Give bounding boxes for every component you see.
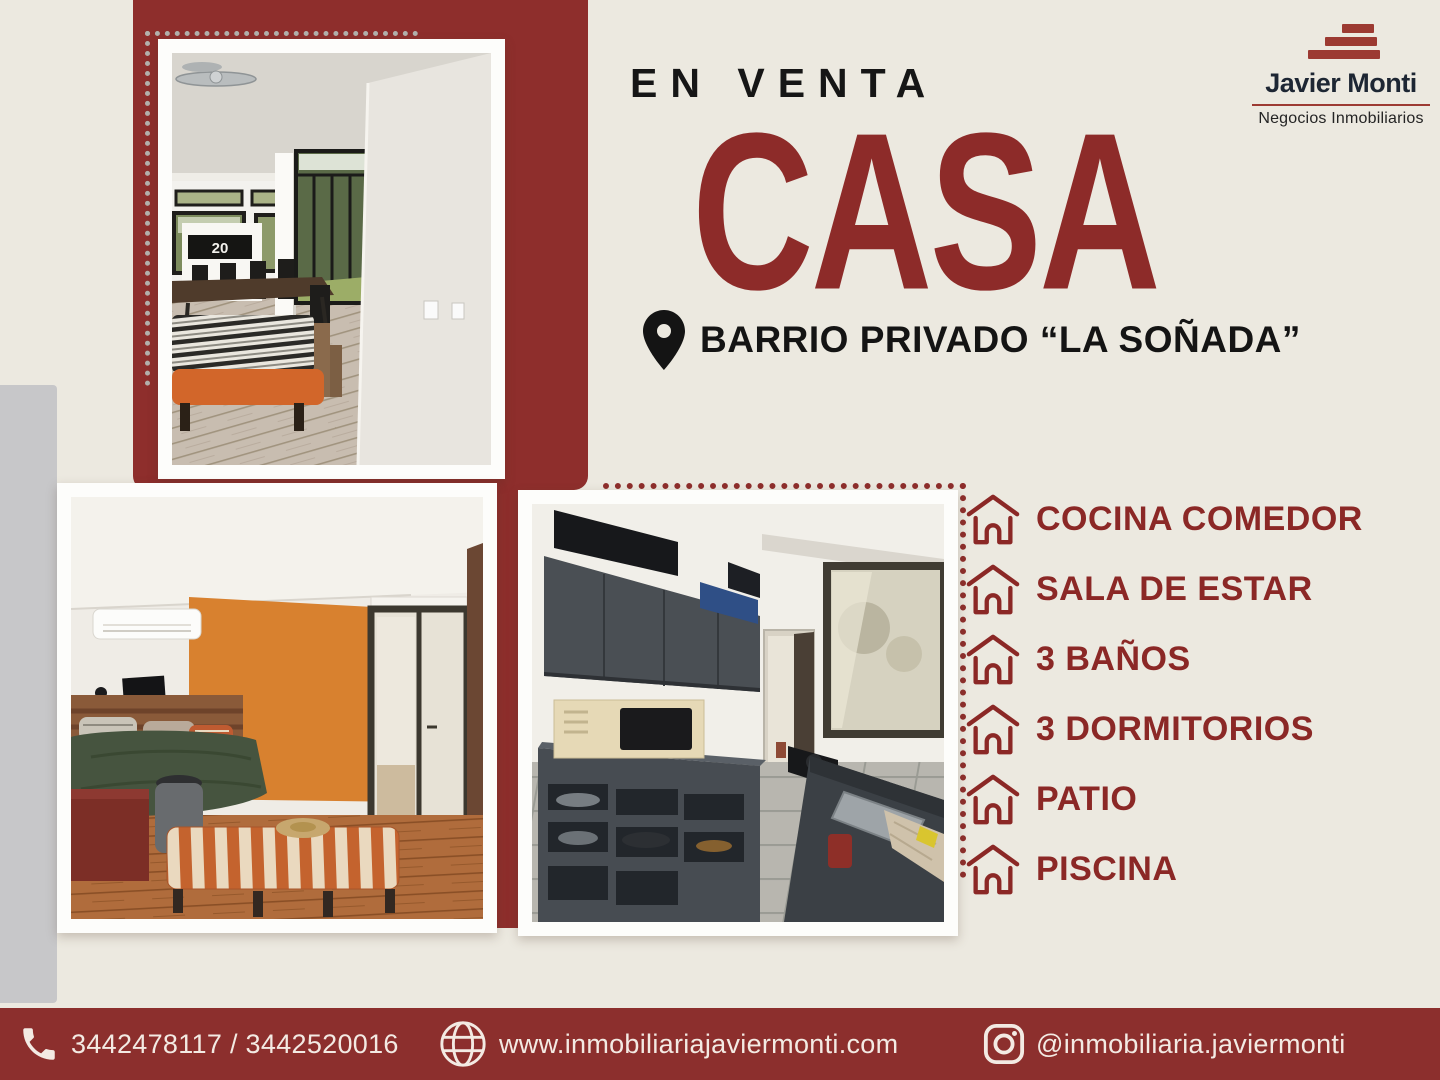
photo-kitchen bbox=[518, 490, 958, 936]
real-estate-flyer: { "header": { "kicker": "EN VENTA", "tit… bbox=[0, 0, 1440, 1080]
wall-art-number: 20 bbox=[212, 240, 229, 257]
stacked-bars-icon bbox=[1252, 24, 1430, 59]
phone-contact: 3442478117 / 3442520016 bbox=[18, 1008, 399, 1080]
page-title: CASA bbox=[692, 100, 1158, 324]
location-pin-icon bbox=[643, 310, 685, 370]
contact-footer: 3442478117 / 3442520016 www.inmobiliaria… bbox=[0, 1008, 1440, 1080]
photo-living-dining-room: 20 bbox=[158, 39, 505, 479]
website-url: www.inmobiliariajaviermonti.com bbox=[499, 1029, 898, 1060]
feature-label: PATIO bbox=[1036, 780, 1137, 819]
feature-patio: PATIO bbox=[966, 772, 1363, 826]
instagram-icon bbox=[983, 1023, 1025, 1065]
agency-logo: Javier Monti Negocios Inmobiliarios bbox=[1252, 24, 1430, 128]
feature-piscina: PISCINA bbox=[966, 842, 1363, 896]
instagram-contact: @inmobiliaria.javiermonti bbox=[983, 1008, 1346, 1080]
phone-icon bbox=[18, 1021, 60, 1067]
location-text: BARRIO PRIVADO “LA SOÑADA” bbox=[700, 319, 1301, 361]
house-icon bbox=[966, 842, 1020, 896]
decorative-gray-strip bbox=[0, 385, 57, 1003]
location-row: BARRIO PRIVADO “LA SOÑADA” bbox=[643, 310, 1301, 370]
red-cabinet bbox=[71, 789, 149, 881]
feature-dormitorios: 3 DORMITORIOS bbox=[966, 702, 1363, 756]
feature-label: COCINA COMEDOR bbox=[1036, 500, 1363, 539]
website-contact: www.inmobiliariajaviermonti.com bbox=[438, 1008, 898, 1080]
photo-bedroom bbox=[57, 483, 497, 933]
agency-tagline: Negocios Inmobiliarios bbox=[1252, 110, 1430, 128]
house-icon bbox=[966, 772, 1020, 826]
feature-banos: 3 BAÑOS bbox=[966, 632, 1363, 686]
feature-sala-de-estar: SALA DE ESTAR bbox=[966, 562, 1363, 616]
ac-unit bbox=[93, 609, 201, 639]
logo-divider bbox=[1252, 104, 1430, 106]
kitchen-window bbox=[827, 566, 944, 734]
shelving-unit bbox=[538, 742, 766, 922]
feature-label: PISCINA bbox=[1036, 850, 1177, 889]
house-icon bbox=[966, 492, 1020, 546]
feature-label: 3 BAÑOS bbox=[1036, 640, 1191, 679]
microwave bbox=[554, 700, 704, 758]
sliding-door bbox=[371, 597, 467, 841]
feature-list: COCINA COMEDOR SALA DE ESTAR 3 BAÑOS 3 D… bbox=[966, 492, 1363, 896]
feature-label: 3 DORMITORIOS bbox=[1036, 710, 1314, 749]
agency-name: Javier Monti bbox=[1252, 68, 1430, 99]
feature-cocina-comedor: COCINA COMEDOR bbox=[966, 492, 1363, 546]
house-icon bbox=[966, 702, 1020, 756]
feature-label: SALA DE ESTAR bbox=[1036, 570, 1313, 609]
house-icon bbox=[966, 632, 1020, 686]
globe-icon bbox=[438, 1019, 488, 1069]
house-icon bbox=[966, 562, 1020, 616]
instagram-handle: @inmobiliaria.javiermonti bbox=[1036, 1029, 1346, 1060]
phone-numbers: 3442478117 / 3442520016 bbox=[71, 1029, 399, 1060]
